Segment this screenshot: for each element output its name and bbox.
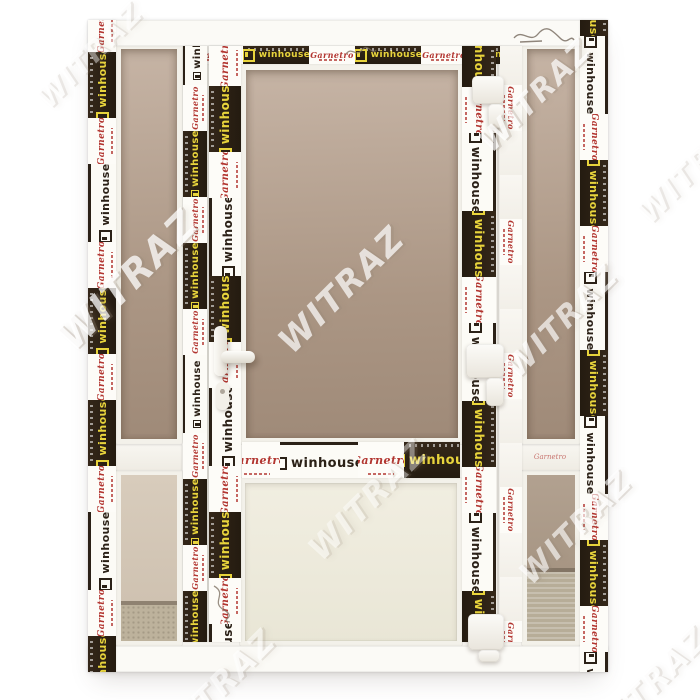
winhouse-logo-icon xyxy=(588,540,601,546)
winhouse-brand-text: winhouse xyxy=(192,46,203,69)
winhouse-logo-icon xyxy=(404,454,405,467)
tape-run: GarnetroGarnetroGarnetroGarnetroGarnetro xyxy=(500,46,522,642)
left-sidelight-bottom-glass xyxy=(116,470,182,646)
tape-plain-segment xyxy=(500,131,522,175)
tape-winhouse-segment: winhouse xyxy=(183,479,207,545)
garnetro-brand-text: Garnetro xyxy=(474,277,485,323)
winhouse-brand-text: winhouse xyxy=(259,50,309,60)
reflection-carpet xyxy=(527,572,575,641)
tape-winhouse-segment: winhouse xyxy=(580,36,608,114)
winhouse-logo-icon xyxy=(473,401,486,405)
tape-winhouse-segment: winhouse xyxy=(243,46,309,64)
winhouse-brand-text: winhouse xyxy=(192,360,203,417)
winhouse-logo-icon xyxy=(193,420,201,428)
tape-strip-right-frame: winhousewinhouseGarnetrowinhouseGarnetro… xyxy=(580,20,608,672)
tape-winhouse-segment: winhouse xyxy=(88,400,116,466)
tape-winhouse-segment: winhouse xyxy=(209,512,241,578)
winhouse-brand-text: winhouse xyxy=(585,52,598,114)
winhouse-brand-text: winhouse xyxy=(96,400,109,456)
garnetro-brand-text: Garnetro xyxy=(97,242,107,288)
winhouse-brand-text: winhouse xyxy=(99,164,112,226)
winhouse-logo-icon xyxy=(473,211,486,215)
hinge-bottom-tab xyxy=(478,650,500,662)
winhouse-logo-icon xyxy=(585,272,598,284)
hinge-bottom xyxy=(468,614,504,650)
winhouse-logo-icon xyxy=(191,302,199,309)
tape-garnetro-segment: Garnetro xyxy=(242,442,280,478)
tape-winhouse-segment: winhouse xyxy=(280,442,358,478)
winhouse-logo-icon xyxy=(219,148,232,152)
winhouse-logo-icon xyxy=(280,457,287,470)
garnetro-brand-text: Garnetro xyxy=(97,354,107,400)
tape-strip-left-frame: winhouseGarnetrowinhouseGarnetrowinhouse… xyxy=(88,20,116,672)
tape-winhouse-segment: winhouse xyxy=(580,160,608,226)
door-bottom-panel xyxy=(240,478,462,646)
tape-garnetro-segment: Garnetro xyxy=(209,466,241,512)
tape-winhouse-segment: winhouse xyxy=(580,20,608,36)
tape-garnetro-segment: Garnetro xyxy=(462,277,496,323)
tape-winhouse-segment: winhouse xyxy=(462,401,496,467)
right-sidelight-rail: Garnetro xyxy=(518,444,582,470)
garnetro-brand-text: Garnetro xyxy=(190,198,200,242)
witraz-watermark: WITRAZ xyxy=(630,104,700,231)
tape-garnetro-segment: Garnetro xyxy=(183,545,207,591)
tape-plain-segment xyxy=(500,175,522,219)
tape-garnetro-segment: Garnetro xyxy=(88,20,116,52)
winhouse-logo-icon xyxy=(470,513,483,523)
garnetro-brand-text: Garnetro xyxy=(506,220,516,264)
winhouse-logo-icon xyxy=(473,591,486,595)
winhouse-brand-text: winhouse xyxy=(472,219,486,277)
tape-winhouse-segment: winhouse xyxy=(209,198,241,276)
winhouse-brand-text: winhouse xyxy=(588,360,601,416)
right-sidelight-bottom-glass xyxy=(522,470,580,646)
winhouse-brand-text: winhouse xyxy=(96,636,109,672)
reflection-carpet xyxy=(121,605,177,641)
tape-run: winhouseGarnetrowinhouseGarnetrowinhouse… xyxy=(183,46,207,642)
garnetro-brand-text: Garnetro xyxy=(190,86,200,130)
garnetro-brand-text: Garnetro xyxy=(474,467,485,513)
winhouse-brand-text: winhouse xyxy=(588,550,601,606)
winhouse-brand-text: winhouse xyxy=(409,453,460,468)
tape-garnetro-segment: Garnetro xyxy=(183,85,207,131)
winhouse-logo-icon xyxy=(99,578,112,590)
tape-garnetro-segment: Garnetro xyxy=(580,114,608,160)
reflection-wall xyxy=(527,475,575,568)
winhouse-logo-icon xyxy=(222,266,235,276)
tape-garnetro-segment: Garnetro xyxy=(500,219,522,265)
winhouse-logo-icon xyxy=(191,190,199,197)
winhouse-brand-text: winhouse xyxy=(371,50,421,60)
winhouse-logo-icon xyxy=(585,36,598,48)
tape-garnetro-segment: Garnetro xyxy=(88,242,116,288)
garnetro-brand-text: Garnetro xyxy=(220,46,231,86)
hinge-middle xyxy=(466,344,504,378)
door-keyhole-escutcheon xyxy=(216,382,229,410)
winhouse-logo-icon xyxy=(588,350,601,356)
tape-plain-segment xyxy=(500,577,522,621)
garnetro-brand-text: Garnetro xyxy=(190,434,200,478)
left-sidelight-rail xyxy=(112,444,182,470)
tape-garnetro-segment: Garnetro xyxy=(462,467,496,513)
tape-winhouse-segment: winhouse xyxy=(183,243,207,309)
tape-winhouse-segment: winhouse xyxy=(209,86,241,152)
winhouse-brand-text: winhouse xyxy=(96,52,109,108)
winhouse-brand-text: winhouse xyxy=(472,409,486,467)
tape-winhouse-segment: winhouse xyxy=(183,131,207,197)
winhouse-brand-text: winhouse xyxy=(469,147,483,211)
winhouse-logo-icon xyxy=(96,112,109,118)
tape-winhouse-segment: winhouse xyxy=(462,211,496,277)
tape-winhouse-segment: winhouse xyxy=(580,272,608,350)
tape-garnetro-segment: Garnetro xyxy=(183,433,207,479)
winhouse-logo-icon xyxy=(222,456,235,466)
tape-winhouse-segment: winhouse xyxy=(462,513,496,591)
tape-plain-segment xyxy=(500,265,522,309)
tape-garnetro-segment: Garnetro xyxy=(88,354,116,400)
hinge-top-tab xyxy=(488,104,504,128)
garnetro-brand-text: Garnetro xyxy=(358,454,404,467)
tape-strip-door-lock-rail: GarnetrowinhouseGarnetrowinhouseGarnetro… xyxy=(242,442,460,478)
garnetro-brand-text: Garnetro xyxy=(97,118,107,164)
garnetro-brand-text: Garnetro xyxy=(589,494,599,540)
door-handle-lever xyxy=(221,351,255,363)
winhouse-logo-icon xyxy=(219,574,232,578)
tape-garnetro-segment: Garnetro xyxy=(580,606,608,652)
tape-garnetro-segment: Garnetro xyxy=(209,152,241,198)
hinge-top xyxy=(472,76,504,104)
winhouse-brand-text: winhouse xyxy=(99,512,112,574)
garnetro-brand-text: Garnetro xyxy=(589,606,599,652)
hinge-middle-tab xyxy=(486,378,504,406)
winhouse-logo-icon xyxy=(470,133,483,143)
garnetro-brand-text: Garnetro xyxy=(506,622,516,642)
tape-garnetro-segment: Garnetro xyxy=(183,197,207,243)
tape-garnetro-segment: Garnetro xyxy=(88,118,116,164)
tape-winhouse-segment: winhouse xyxy=(462,133,496,211)
tape-winhouse-segment: winhouse xyxy=(183,355,207,433)
garnetro-brand-text: Garnetro xyxy=(589,114,599,160)
rail-print: Garnetro xyxy=(534,453,566,461)
tape-run: winhousewinhouseGarnetrowinhouseGarnetro… xyxy=(580,20,608,672)
tape-garnetro-segment: Garnetro xyxy=(580,494,608,540)
winhouse-brand-text: winhouse xyxy=(221,624,235,642)
tape-garnetro-segment: Garnetro xyxy=(421,46,467,64)
tape-garnetro-segment: Garnetro xyxy=(88,590,116,636)
garnetro-brand-text: Garnetro xyxy=(589,226,599,272)
handwriting-scribble xyxy=(208,584,238,624)
tape-winhouse-segment: winhouse xyxy=(183,46,207,85)
tape-winhouse-segment: winhouse xyxy=(88,164,116,242)
tape-winhouse-segment: winhouse xyxy=(580,416,608,494)
winhouse-logo-icon xyxy=(99,230,112,242)
tape-garnetro-segment: Garnetro xyxy=(500,487,522,533)
winhouse-logo-icon xyxy=(588,160,601,166)
garnetro-brand-text: Garnetro xyxy=(242,454,280,467)
tape-winhouse-segment: winhouse xyxy=(404,442,460,478)
tape-strip-left-mullion: winhouseGarnetrowinhouseGarnetrowinhouse… xyxy=(183,46,207,642)
winhouse-logo-icon xyxy=(191,538,199,545)
winhouse-logo-icon xyxy=(470,323,483,333)
garnetro-brand-text: Garnetro xyxy=(506,488,516,532)
tape-winhouse-segment: winhouse xyxy=(209,624,241,642)
glass-tint-surface xyxy=(527,49,575,439)
reflection-wall xyxy=(121,475,177,601)
product-photo: Garnetro GarnetrowinhouseGarnetrowinhous… xyxy=(0,0,700,700)
winhouse-brand-text: winhouse xyxy=(588,20,601,36)
left-sidelight-top-glass xyxy=(116,44,182,444)
winhouse-brand-text: winhouse xyxy=(96,288,109,344)
garnetro-brand-text: Garnetro xyxy=(220,152,231,198)
winhouse-brand-text: winhouse xyxy=(190,131,201,187)
winhouse-brand-text: winhouse xyxy=(291,456,358,471)
handwriting-scribble xyxy=(344,42,378,62)
glass-reflection-surface xyxy=(121,475,177,641)
garnetro-brand-text: Garnetro xyxy=(220,466,231,512)
glass-tint-surface xyxy=(246,70,458,438)
tape-winhouse-segment: winhouse xyxy=(88,288,116,354)
garnetro-brand-text: Garnetro xyxy=(422,50,466,60)
garnetro-brand-text: Garnetro xyxy=(97,466,107,512)
winhouse-brand-text: winhouse xyxy=(585,668,598,672)
tape-plain-segment xyxy=(500,399,522,443)
tape-winhouse-segment: winhouse xyxy=(183,591,207,642)
garnetro-brand-text: Garnetro xyxy=(190,546,200,590)
winhouse-brand-text: winhouse xyxy=(469,527,483,591)
tape-garnetro-segment: Garnetro xyxy=(88,466,116,512)
tape-run: GarnetrowinhouseGarnetrowinhouseGarnetro… xyxy=(242,442,460,478)
winhouse-brand-text: winhouse xyxy=(218,512,232,570)
tape-winhouse-segment: winhouse xyxy=(88,636,116,672)
tape-winhouse-segment: winhouse xyxy=(88,512,116,590)
winhouse-brand-text: winhouse xyxy=(588,170,601,226)
tape-strip-right-mullion: GarnetroGarnetroGarnetroGarnetroGarnetro xyxy=(500,46,522,642)
garnetro-brand-text: Garnetro xyxy=(506,354,516,398)
tape-garnetro-segment: Garnetro xyxy=(358,442,404,478)
panel-surface xyxy=(245,483,457,641)
tape-winhouse-segment: winhouse xyxy=(88,52,116,118)
handwriting-scribble xyxy=(512,24,576,46)
tape-garnetro-segment: Garnetro xyxy=(209,46,241,86)
winhouse-brand-text: winhouse xyxy=(585,432,598,494)
winhouse-logo-icon xyxy=(193,72,201,80)
right-sidelight-top-glass xyxy=(522,44,580,444)
winhouse-brand-text: winhouse xyxy=(221,198,235,262)
winhouse-logo-icon xyxy=(96,348,109,354)
winhouse-logo-icon xyxy=(585,652,598,664)
tape-garnetro-segment: Garnetro xyxy=(183,309,207,355)
garnetro-brand-text: Garnetro xyxy=(97,20,107,52)
glass-reflection-surface xyxy=(527,475,575,641)
garnetro-brand-text: Garnetro xyxy=(190,310,200,354)
winhouse-brand-text: winhouse xyxy=(218,86,232,144)
door-gap-left xyxy=(207,46,209,642)
winhouse-brand-text: winhouse xyxy=(190,479,201,535)
tape-plain-segment xyxy=(500,443,522,487)
tape-run: winhouseGarnetrowinhouseGarnetrowinhouse… xyxy=(88,20,116,672)
tape-plain-segment xyxy=(500,533,522,577)
winhouse-brand-text: winhouse xyxy=(585,288,598,350)
winhouse-logo-icon xyxy=(243,49,255,62)
tape-winhouse-segment: winhouse xyxy=(580,540,608,606)
glass-tint-surface xyxy=(121,49,177,439)
garnetro-brand-text: Garnetro xyxy=(97,590,107,636)
winhouse-brand-text: winhouse xyxy=(190,243,201,299)
tape-winhouse-segment: winhouse xyxy=(580,652,608,672)
tape-winhouse-segment: winhouse xyxy=(580,350,608,416)
winhouse-brand-text: winhouse xyxy=(190,591,201,642)
winhouse-logo-icon xyxy=(96,460,109,466)
garnetro-brand-text: Garnetro xyxy=(506,86,516,130)
tape-garnetro-segment: Garnetro xyxy=(580,226,608,272)
door-top-glass xyxy=(240,64,464,444)
tape-strip-bottom-frame: winhouseGarnetrowinhouseGarnetrowinhouse… xyxy=(88,646,608,672)
winhouse-logo-icon xyxy=(585,416,598,428)
